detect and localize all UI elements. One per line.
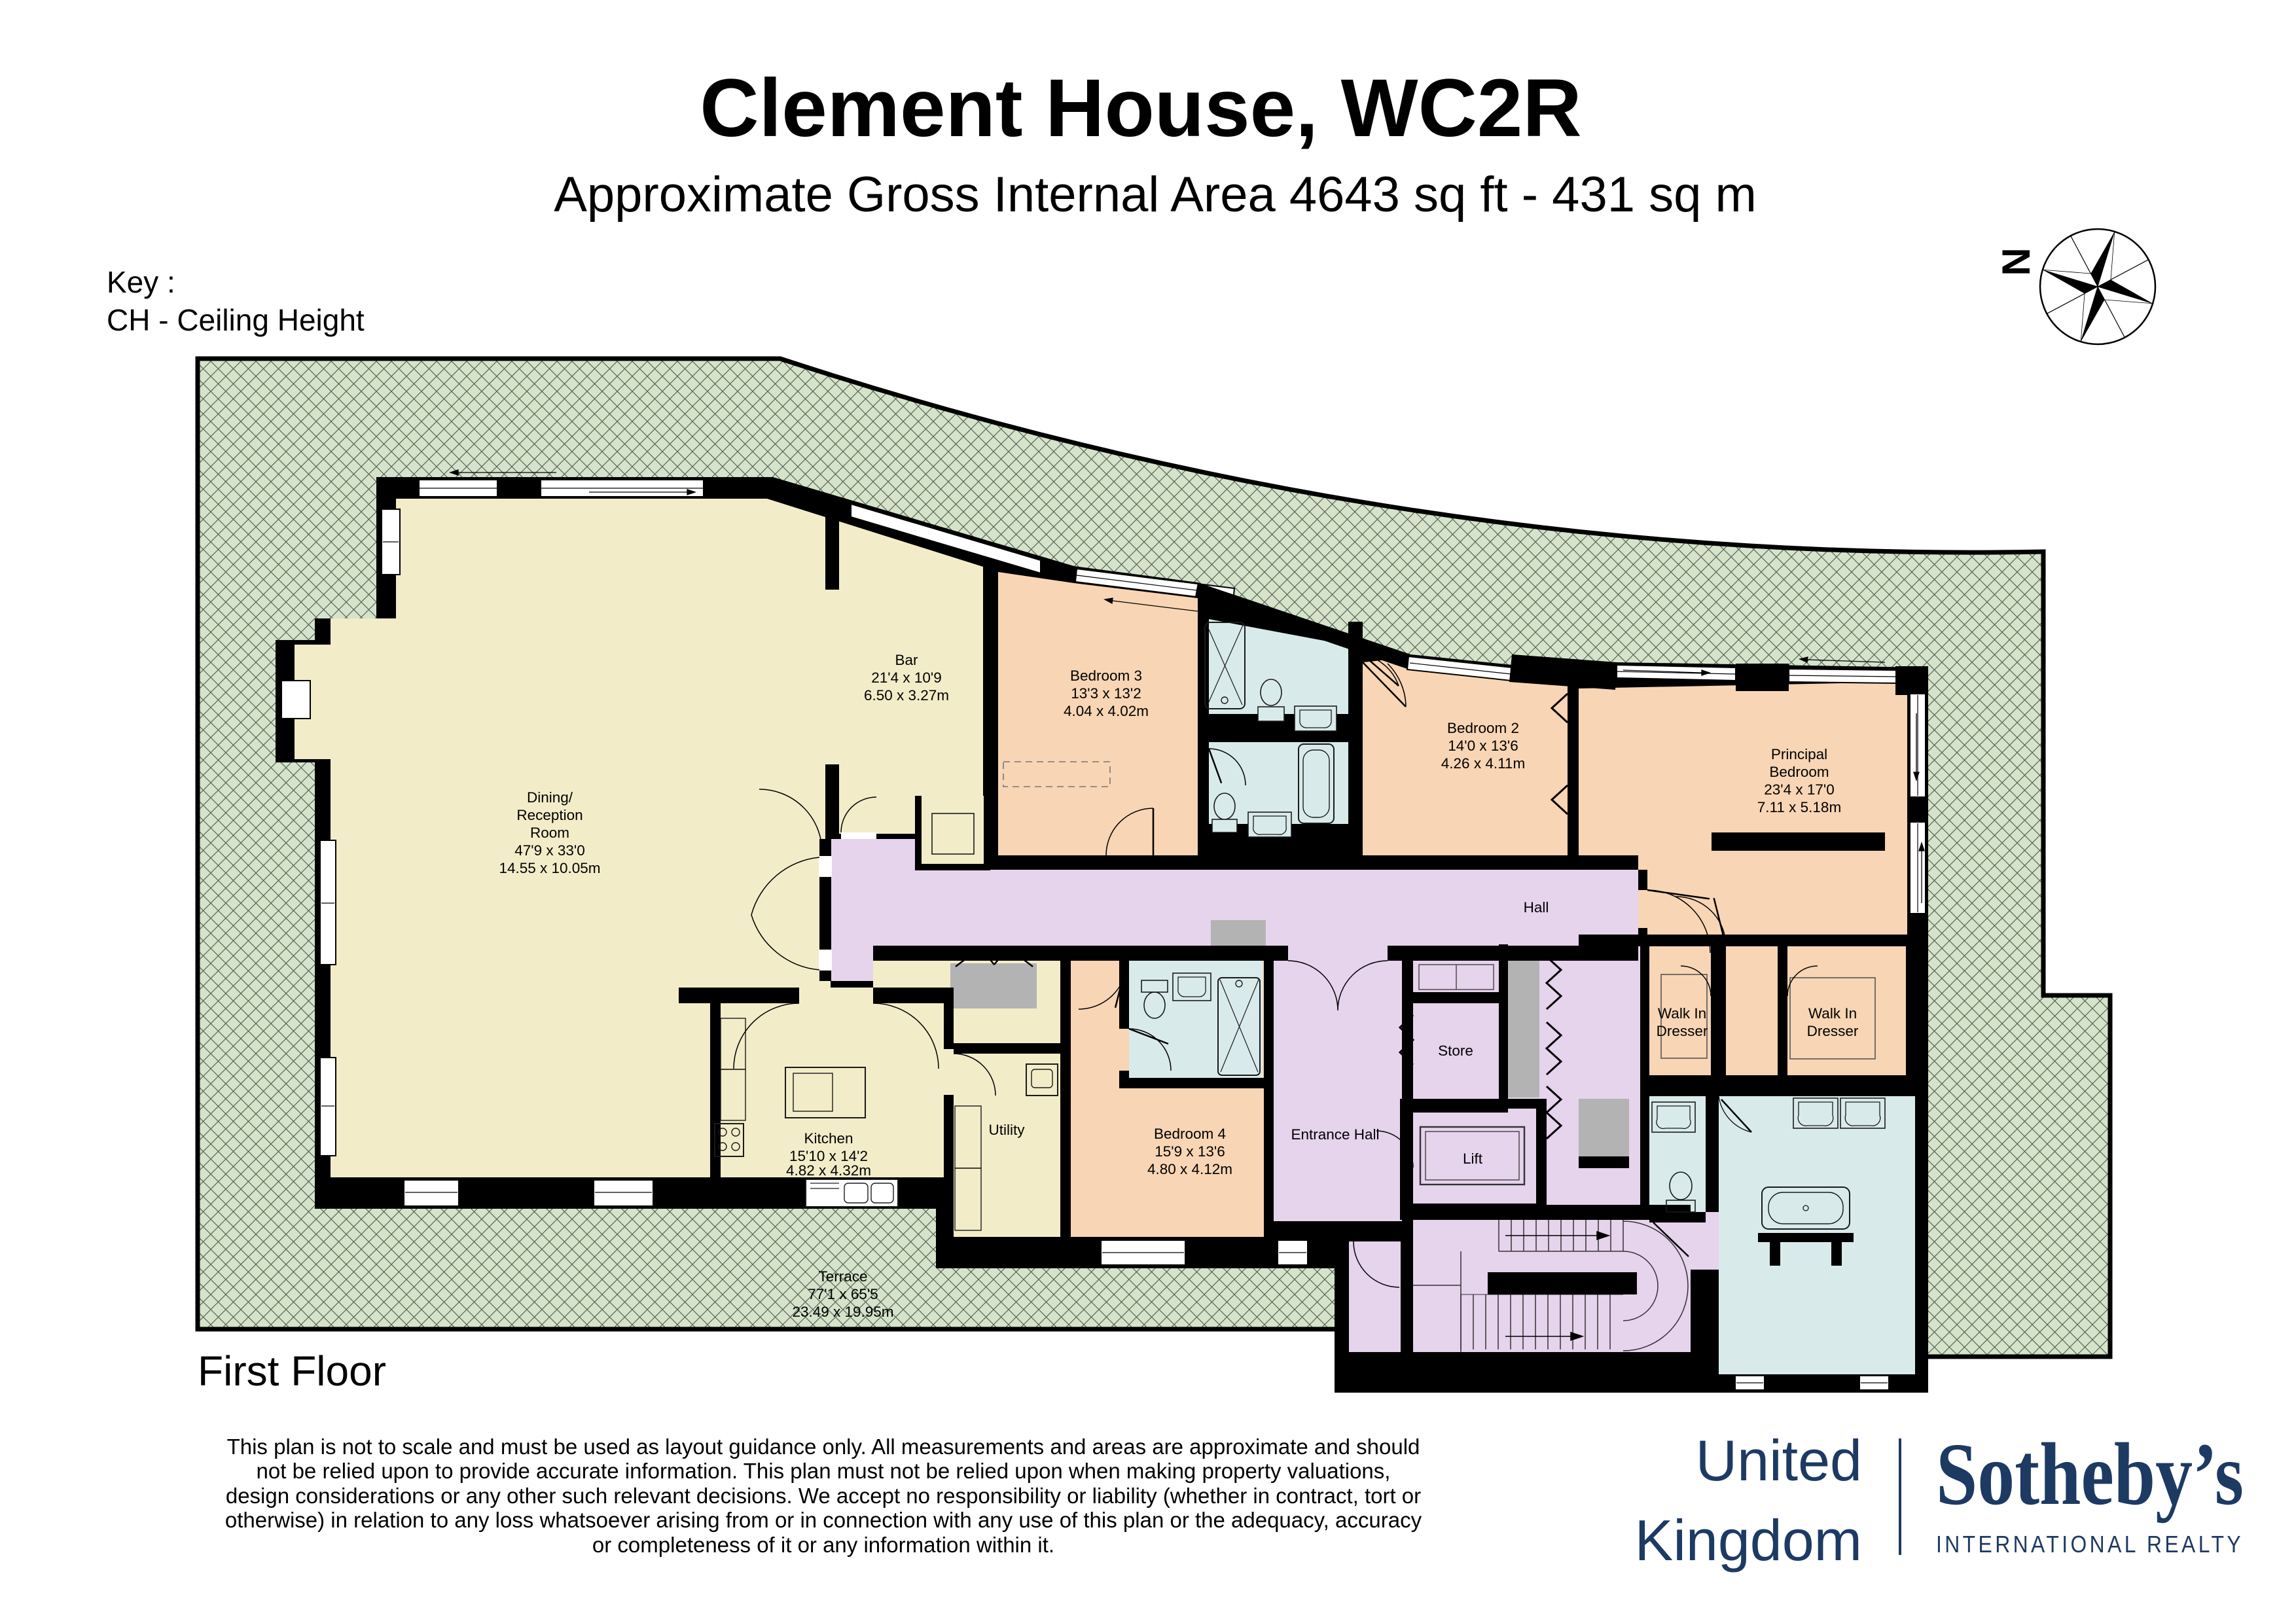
svg-text:Terrace: Terrace [818, 1268, 867, 1285]
svg-text:Bedroom 3: Bedroom 3 [1070, 668, 1142, 684]
svg-text:otherwise) in relation to any: otherwise) in relation to any loss whats… [225, 1508, 1422, 1532]
svg-text:Hall: Hall [1524, 899, 1549, 916]
svg-text:21'4 x 10'9: 21'4 x 10'9 [871, 669, 941, 686]
svg-text:4.26 x 4.11m: 4.26 x 4.11m [1441, 755, 1525, 772]
svg-text:Reception: Reception [516, 807, 583, 823]
svg-text:23'4 x 17'0: 23'4 x 17'0 [1764, 781, 1834, 798]
svg-text:4.82 x 4.32m: 4.82 x 4.32m [786, 1162, 871, 1179]
svg-text:or completeness of it or any i: or completeness of it or any information… [592, 1533, 1054, 1557]
svg-text:CH - Ceiling Height: CH - Ceiling Height [107, 303, 365, 337]
svg-text:Sotheby’s: Sotheby’s [1936, 1425, 2244, 1524]
svg-text:4.04 x 4.02m: 4.04 x 4.02m [1064, 703, 1149, 719]
svg-text:not be relied upon to provide: not be relied upon to provide accurate i… [257, 1459, 1391, 1483]
svg-text:Bedroom 2: Bedroom 2 [1447, 720, 1519, 736]
svg-text:Key :: Key : [107, 265, 175, 299]
svg-text:Dining/: Dining/ [527, 789, 573, 806]
svg-text:Kitchen: Kitchen [804, 1130, 853, 1147]
svg-text:This plan is not to scale and: This plan is not to scale and must be us… [227, 1435, 1420, 1459]
svg-text:Store: Store [1438, 1043, 1473, 1059]
svg-text:Room: Room [530, 825, 569, 841]
svg-text:Kingdom: Kingdom [1635, 1508, 1862, 1573]
svg-text:Walk In: Walk In [1658, 1005, 1706, 1022]
svg-text:First Floor: First Floor [198, 1347, 386, 1395]
svg-text:Dresser: Dresser [1657, 1023, 1708, 1039]
svg-text:Lift: Lift [1463, 1150, 1483, 1167]
svg-text:13'3 x 13'2: 13'3 x 13'2 [1071, 685, 1141, 702]
svg-text:design considerations or any o: design considerations or any other such … [226, 1484, 1421, 1508]
svg-text:N: N [1994, 247, 2038, 276]
svg-text:United: United [1696, 1428, 1862, 1493]
svg-text:4.80 x 4.12m: 4.80 x 4.12m [1147, 1161, 1232, 1177]
svg-text:Bar: Bar [895, 652, 918, 668]
svg-text:77'1 x 65'5: 77'1 x 65'5 [808, 1286, 878, 1302]
svg-text:Walk In: Walk In [1808, 1005, 1857, 1022]
svg-text:7.11 x 5.18m: 7.11 x 5.18m [1757, 799, 1841, 815]
svg-text:Utility: Utility [989, 1122, 1026, 1138]
svg-text:Entrance Hall: Entrance Hall [1291, 1126, 1379, 1143]
svg-text:Bedroom 4: Bedroom 4 [1154, 1126, 1226, 1142]
svg-text:Dresser: Dresser [1807, 1023, 1859, 1039]
svg-text:15'9 x 13'6: 15'9 x 13'6 [1155, 1143, 1225, 1160]
svg-text:Principal: Principal [1771, 746, 1827, 762]
svg-text:14.55 x 10.05m: 14.55 x 10.05m [499, 860, 600, 876]
svg-text:6.50 x 3.27m: 6.50 x 3.27m [864, 687, 949, 704]
svg-text:Approximate Gross Internal Are: Approximate Gross Internal Area 4643 sq … [554, 167, 1757, 223]
svg-text:47'9 x 33'0: 47'9 x 33'0 [514, 842, 584, 859]
svg-text:14'0 x 13'6: 14'0 x 13'6 [1448, 738, 1518, 754]
svg-text:Clement House, WC2R: Clement House, WC2R [700, 63, 1581, 154]
svg-text:INTERNATIONAL REALTY: INTERNATIONAL REALTY [1936, 1531, 2244, 1558]
svg-text:Bedroom: Bedroom [1769, 764, 1829, 780]
svg-text:23.49 x 19.95m: 23.49 x 19.95m [792, 1304, 893, 1320]
